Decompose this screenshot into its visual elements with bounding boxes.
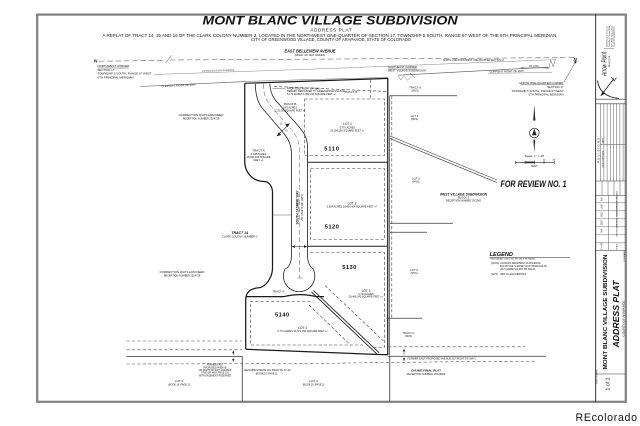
svg-text:45' (OD): 45' (OD) (529, 64, 539, 68)
svg-text:RESUBDIVISION OF TRACTS 17-20: RESUBDIVISION OF TRACTS 17-20 (244, 368, 291, 372)
svg-text:WEST VILLAGE SUBDIVISION: WEST VILLAGE SUBDIVISION (388, 69, 426, 73)
svg-text:UTILITY EASEMENT AND BOOK 1553: UTILITY EASEMENT AND BOOK 1553, PAGE 444 (500, 268, 535, 271)
svg-text:TRACT 14: TRACT 14 (231, 231, 248, 235)
svg-text:1" = 40': 1" = 40' (601, 242, 604, 251)
svg-text:(CDOA): (CDOA) (491, 262, 499, 265)
svg-text:80: 80 (553, 159, 556, 161)
svg-text:EAST BELLEVIEW AVENUE: EAST BELLEVIEW AVENUE (285, 49, 337, 54)
svg-text:CITY OF GREENWOOD VILLAGE, COU: CITY OF GREENWOOD VILLAGE, COUNTY OF ARA… (251, 37, 412, 42)
svg-text:1 of 1: 1 of 1 (606, 377, 612, 390)
svg-text:TRACT A: TRACT A (272, 289, 284, 293)
svg-text:2,175.00 SQUARE FEET +/-: 2,175.00 SQUARE FEET +/- (274, 109, 306, 112)
svg-text:Surveying, Ltd.: Surveying, Ltd. (607, 55, 611, 67)
svg-text:COLORADO DEPARTMENT OF ASSURAN: COLORADO DEPARTMENT OF ASSURANCE (500, 262, 541, 265)
svg-text:N/A: N/A (601, 197, 604, 201)
svg-text:S 89°38'40"E 2619.16' (BASIS: S 89°38'40"E 2619.16' (BASIS OF BEARINGS… (202, 69, 234, 73)
svg-text:25': 25' (284, 129, 288, 133)
svg-text:(30' RIGHT OF WAY) VACATED: (30' RIGHT OF WAY) VACATED (199, 369, 232, 372)
svg-text:LEGEND: LEGEND (490, 252, 513, 258)
svg-text:ADDRESS PLAT: ADDRESS PLAT (311, 27, 352, 32)
svg-text:5140: 5140 (275, 313, 290, 319)
svg-text:(RIGHT OF WAY VARIES): (RIGHT OF WAY VARIES) (295, 53, 326, 57)
svg-text:(BOOK 16, PAGE 2): (BOOK 16, PAGE 2) (303, 383, 325, 386)
svg-text:WEST VILLAGE SUBDIVISION: WEST VILLAGE SUBDIVISION (440, 192, 488, 196)
svg-text:THESE STANDARD SYMBOLS WILL BE: THESE STANDARD SYMBOLS WILL BE FOUND IN … (490, 258, 536, 261)
svg-text:5110: 5110 (324, 147, 339, 153)
svg-text:JMD: JMD (601, 220, 604, 225)
svg-text:5120: 5120 (325, 225, 340, 231)
svg-text:FEET +/-: FEET +/- (253, 159, 263, 162)
svg-text:25': 25' (279, 123, 283, 127)
svg-text:0.772 ACRES 33,671,156 SQUARE: 0.772 ACRES 33,671,156 SQUARE FEET +/- (277, 330, 328, 333)
svg-text:(BOOK 16, PAGE 2): (BOOK 16, PAGE 2) (256, 372, 278, 375)
svg-text:CURRENT RIGHT OF WAY: CURRENT RIGHT OF WAY (489, 69, 524, 74)
svg-text:FEET: FEET (531, 164, 538, 168)
svg-text:6TH PRINCIPAL MERIDIAN: 6TH PRINCIPAL MERIDIAN (529, 93, 564, 97)
svg-text:WEST VILLAGE SUBDIVISION: WEST VILLAGE SUBDIVISION (500, 273, 526, 276)
svg-text:RECEPTION NUMBER, 20149600: RECEPTION NUMBER, 20149600 (407, 373, 446, 376)
svg-text:(WVS): (WVS) (491, 274, 498, 276)
svg-text:COUNTY OF ARAPAHOE: COUNTY OF ARAPAHOE (623, 300, 626, 337)
svg-text:RECEPTION NUMBER 2024729: RECEPTION NUMBER 2024729 (183, 117, 220, 120)
svg-text:REcolorado: REcolorado (576, 412, 638, 424)
svg-text:0.654 ACRES 28,496,404 SQUARE: 0.654 ACRES 28,496,404 SQUARE FEET +/- (327, 206, 378, 209)
svg-text:LAB: LAB (601, 204, 604, 209)
svg-text:WITH EASEMENT RESERVED: WITH EASEMENT RESERVED (199, 374, 232, 377)
svg-text:(WVS): (WVS) (412, 181, 419, 184)
svg-text:SOUTH JASMINE WAY: SOUTH JASMINE WAY (295, 190, 299, 225)
svg-text:arrowpointsurveying@gmail.com: arrowpointsurveying@gmail.com (613, 26, 616, 47)
svg-text:RECEPTION NUMBER 2024729: RECEPTION NUMBER 2024729 (164, 274, 201, 277)
svg-text:TRACT B: TRACT B (345, 90, 358, 94)
svg-text:FORMER EAST: FORMER EAST (207, 364, 224, 367)
svg-text:JMD: JMD (601, 212, 604, 217)
svg-text:MONT BLANC VILLAGE SUBDIVISION: MONT BLANC VILLAGE SUBDIVISION (203, 13, 459, 27)
svg-text:FORMER EAST PROPOSED AVENUE (3: FORMER EAST PROPOSED AVENUE (30' RIGHT O… (408, 357, 476, 360)
svg-text:MONT BLANC VILLAGE SUBDIVISION: MONT BLANC VILLAGE SUBDIVISION (603, 255, 609, 370)
svg-text:FOR REVIEW NO. 1: FOR REVIEW NO. 1 (501, 178, 567, 189)
svg-text:REVISIONS: REVISIONS (597, 137, 601, 163)
svg-text:(WVS): (WVS) (411, 89, 418, 92)
svg-text:RECEPTION NUMBER 2972942: RECEPTION NUMBER 2972942 (446, 200, 482, 203)
svg-text:DESCRIPTION: DESCRIPTION (602, 150, 604, 168)
svg-text:40: 40 (543, 159, 546, 161)
svg-text:CHECKED BY:: CHECKED BY: (617, 224, 619, 237)
svg-text:SHEET NUMBER: SHEET NUMBER (597, 369, 599, 384)
svg-text:(WVS): (WVS) (411, 118, 418, 121)
svg-text:NORTH LINE NORTHWEST ONE-QUART: NORTH LINE NORTHWEST ONE-QUARTER SECTION… (443, 58, 504, 62)
svg-text:DATE: DATE (601, 137, 604, 144)
svg-text:5130: 5130 (342, 265, 357, 271)
svg-text:LOT 1: LOT 1 (343, 122, 352, 126)
svg-text:BOOK 4857, PAGE 710 EASTERLY 3: BOOK 4857, PAGE 710 EASTERLY 30 FOOT PRI… (500, 265, 547, 268)
svg-text:(WVS): (WVS) (410, 272, 417, 275)
svg-text:33,166,156 SQUARE FEET +/-: 33,166,156 SQUARE FEET +/- (330, 129, 365, 132)
svg-text:Scale: 1" = 40': Scale: 1" = 40' (525, 154, 545, 158)
svg-text:N/A: N/A (601, 228, 604, 232)
svg-text:5,170 ACRES 1,052,249 SQUARE: 5,170 ACRES 1,052,249 SQUARE FEET +/- (287, 93, 336, 96)
svg-text:COLORADO: COLORADO (623, 251, 626, 262)
svg-text:(WVS): (WVS) (405, 335, 412, 338)
svg-text:6TH PRINCIPAL MERIDIAN: 6TH PRINCIPAL MERIDIAN (98, 75, 134, 79)
svg-text:PROPOSED AVENUE: PROPOSED AVENUE (204, 366, 227, 369)
svg-text:SCALE:: SCALE: (616, 243, 619, 250)
svg-text:(50' RIGHT OF WAY): (50' RIGHT OF WAY) (301, 194, 304, 221)
svg-text:N: N (94, 58, 98, 63)
svg-text:ADDRESS PLAT: ADDRESS PLAT (612, 279, 621, 348)
svg-text:CURRENT RIGHT OF WAY: CURRENT RIGHT OF WAY (161, 82, 196, 88)
svg-text:AT BOOK 4824, PAGE 233: AT BOOK 4824, PAGE 233 (201, 372, 229, 375)
svg-text:(BOOK 16, PAGE 2): (BOOK 16, PAGE 2) (168, 383, 190, 386)
svg-text:29,466,240 SQUARE FEET +/-: 29,466,240 SQUARE FEET +/- (349, 296, 384, 299)
svg-text:CLARK COLONY NUMBER 3: CLARK COLONY NUMBER 3 (222, 234, 258, 238)
